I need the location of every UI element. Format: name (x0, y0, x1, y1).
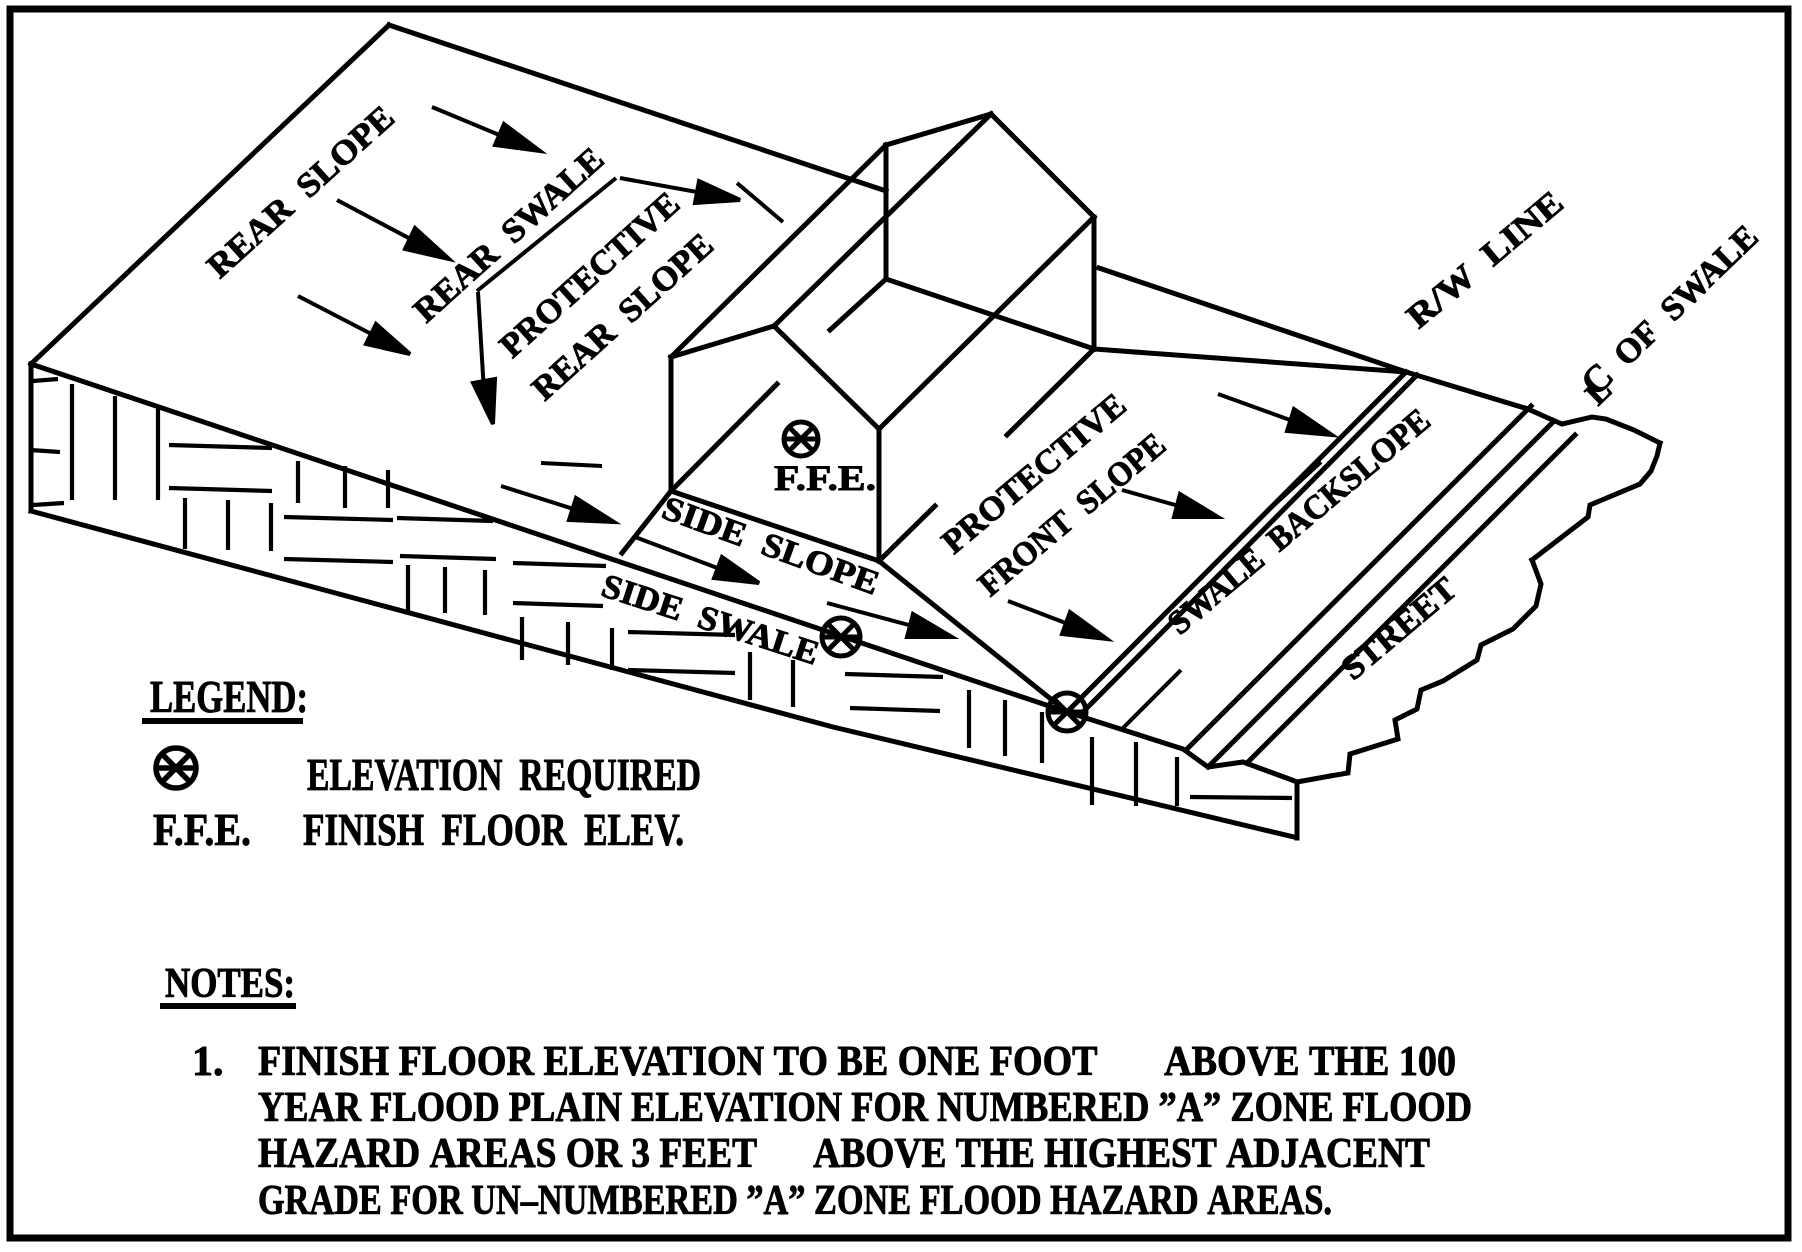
svg-text:1.: 1. (192, 1039, 224, 1085)
svg-text:HAZARD AREAS OR 3 FEET AB: HAZARD AREAS OR 3 FEET ABOVE THE HIGHEST… (258, 1131, 1430, 1177)
svg-text:YEAR FLOOD PLAIN ELEVATION FOR: YEAR FLOOD PLAIN ELEVATION FOR NUMBERED … (258, 1085, 1472, 1131)
svg-text:F.F.E.: F.F.E. (153, 805, 251, 855)
svg-text:NOTES:: NOTES: (165, 961, 295, 1007)
svg-text:ELEVATION REQUIRED: ELEVATION REQUIRED (307, 750, 701, 800)
svg-text:LEGEND:: LEGEND: (150, 672, 308, 722)
svg-text:FINISH FLOOR ELEV.: FINISH FLOOR ELEV. (303, 805, 684, 855)
svg-text:GRADE FOR UN–NUMBERED ”A” ZONE: GRADE FOR UN–NUMBERED ”A” ZONE FLOOD HAZ… (258, 1178, 1332, 1224)
svg-text:F.F.E.: F.F.E. (774, 458, 876, 498)
svg-text:FINISH FLOOR ELEVATION TO BE O: FINISH FLOOR ELEVATION TO BE ONE FOOT AB… (258, 1039, 1456, 1085)
